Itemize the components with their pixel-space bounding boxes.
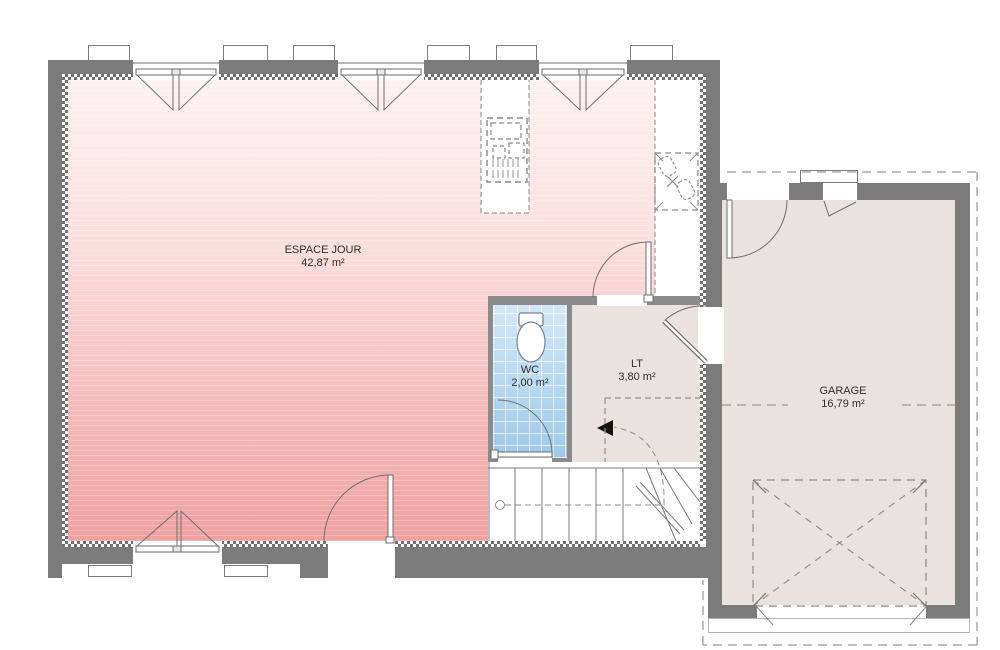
- room-area: 16,79 m²: [791, 398, 895, 411]
- room-label-wc: WC 2,00 m²: [490, 364, 570, 390]
- room-area: 3,80 m²: [597, 371, 677, 384]
- garage-door-jamb-marks: [757, 607, 926, 625]
- window-icon-top-3: [539, 63, 627, 110]
- room-label-lt: LT 3,80 m²: [597, 358, 677, 384]
- room-label-garage: GARAGE 16,79 m²: [788, 385, 898, 411]
- garage-entry-door-swing-icon: [727, 200, 787, 258]
- window-icon-top-2: [338, 63, 424, 110]
- wc-door-swing-icon: [491, 400, 552, 459]
- room-name: LT: [597, 358, 677, 371]
- room-name: ESPACE JOUR: [248, 244, 398, 257]
- floor-plan-canvas: ESPACE JOUR 42,87 m² WC 2,00 m² LT 3,80 …: [0, 0, 1000, 650]
- room-label-espace-jour: ESPACE JOUR 42,87 m²: [248, 244, 398, 270]
- room-area: 42,87 m²: [248, 257, 398, 270]
- stairs-icon: [488, 462, 700, 541]
- room-area: 2,00 m²: [490, 377, 570, 390]
- sink-icon: [655, 153, 698, 210]
- room-name: WC: [490, 364, 570, 377]
- room-name: GARAGE: [791, 385, 895, 398]
- window-icon-top-1: [133, 63, 219, 110]
- garage-door-clearance-box: [753, 480, 926, 606]
- toilet-icon: [517, 313, 545, 362]
- lt-dashed-zone: [605, 398, 700, 462]
- garage-window-casement: [824, 201, 856, 216]
- lt-door-swing-icon: [593, 242, 653, 302]
- cooktop-icon: [487, 118, 527, 182]
- front-door-swing-icon: [324, 475, 394, 543]
- garage-lt-door-swing-icon: [664, 306, 706, 362]
- kitchen-island-outline: [481, 80, 529, 213]
- plan-linework: [0, 0, 1000, 650]
- window-icon-bottom: [136, 511, 219, 552]
